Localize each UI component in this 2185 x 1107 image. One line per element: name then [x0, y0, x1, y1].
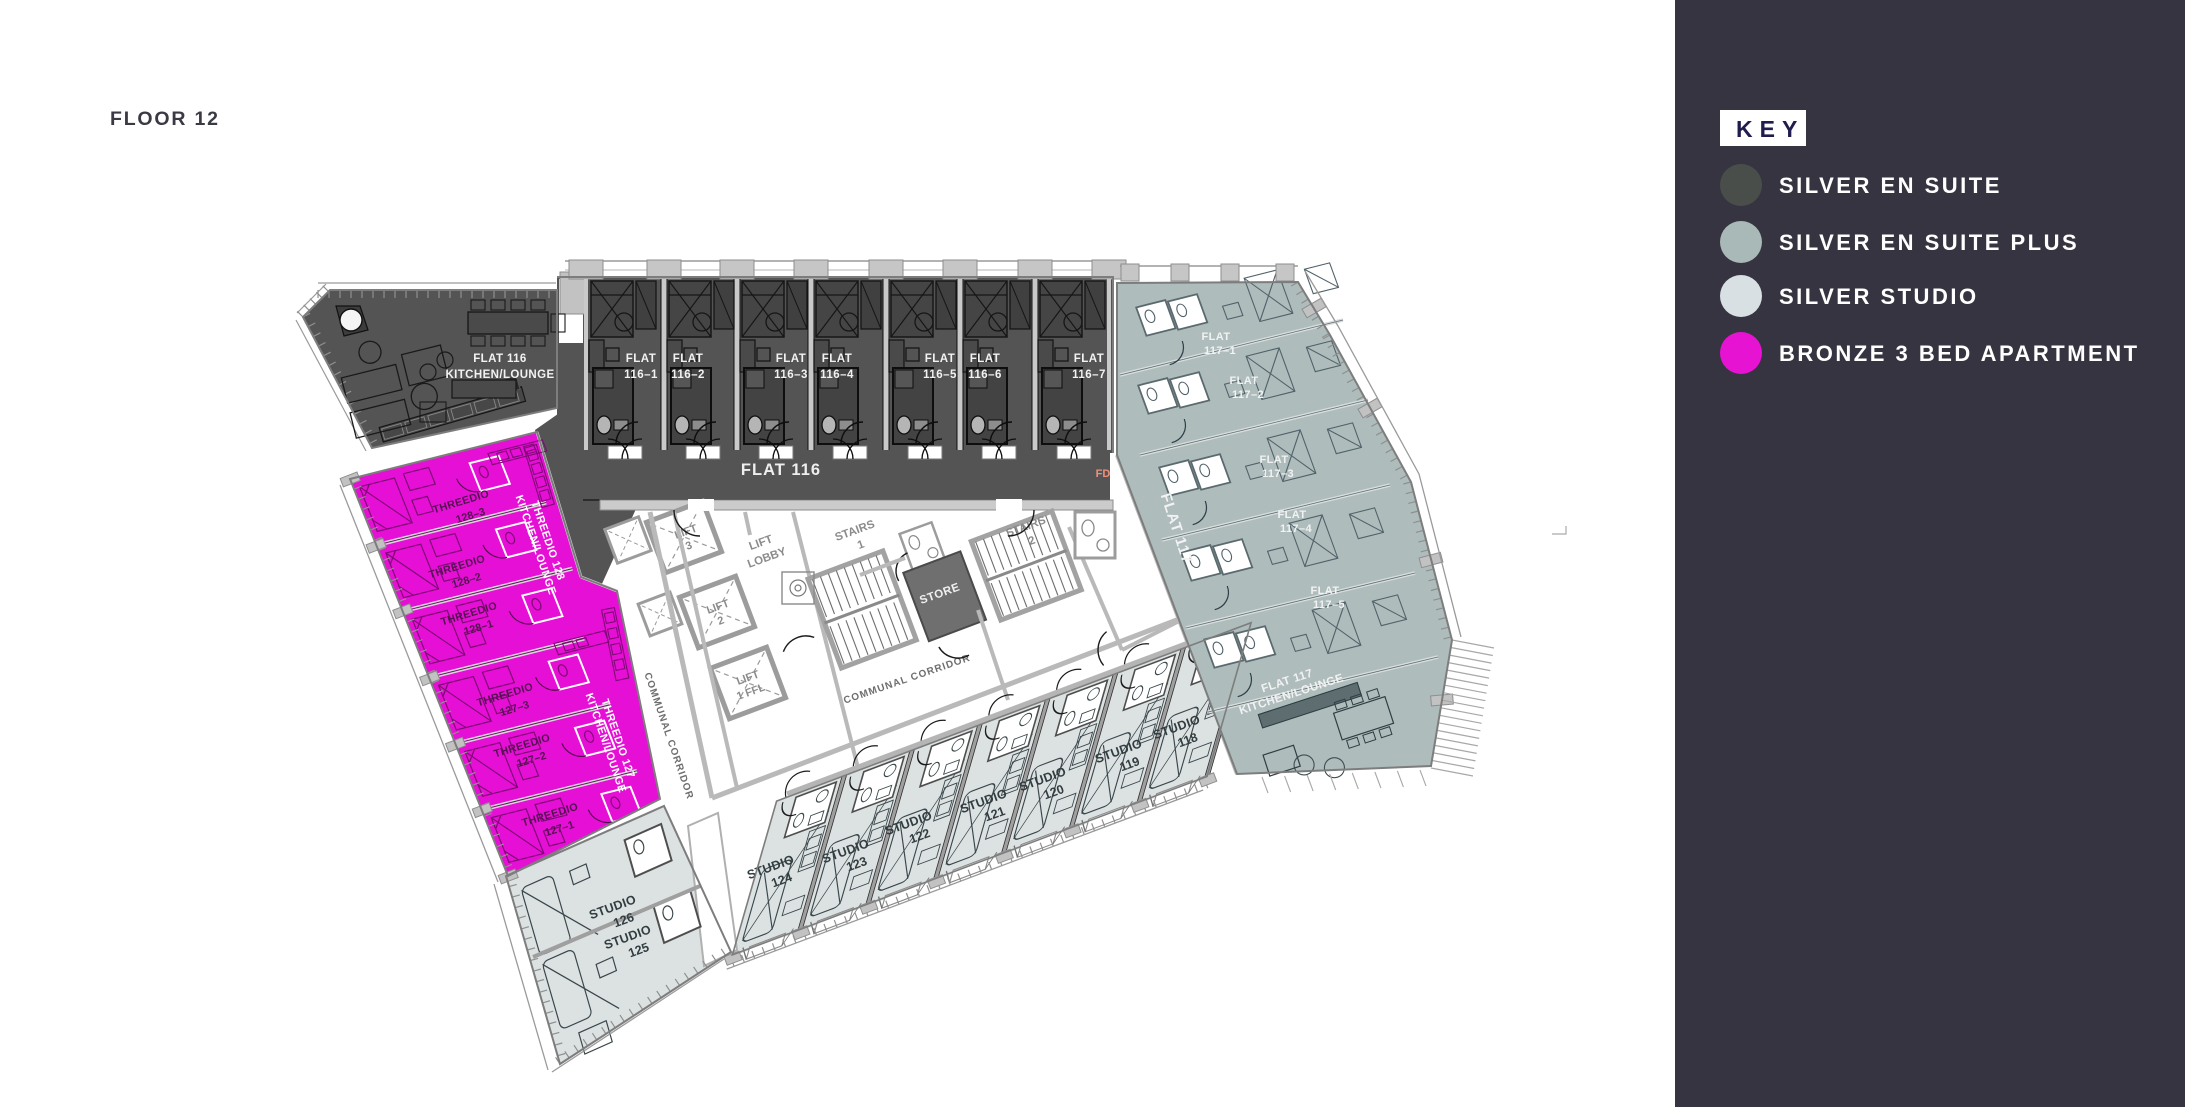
svg-text:FLAT: FLAT: [1202, 331, 1231, 343]
svg-text:116–7: 116–7: [1072, 369, 1106, 381]
svg-text:FLAT: FLAT: [1230, 375, 1259, 387]
svg-text:SILVER STUDIO: SILVER STUDIO: [1779, 284, 1979, 309]
svg-text:FLAT 116: FLAT 116: [741, 461, 821, 479]
svg-text:FLAT 116: FLAT 116: [473, 353, 526, 365]
svg-text:117–4: 117–4: [1280, 523, 1312, 535]
svg-text:KEY: KEY: [1736, 116, 1804, 142]
svg-text:116–1: 116–1: [624, 369, 658, 381]
svg-text:FLAT: FLAT: [673, 353, 704, 365]
svg-text:117–3: 117–3: [1262, 468, 1294, 480]
svg-text:FLAT: FLAT: [1278, 509, 1307, 521]
svg-text:117–5: 117–5: [1313, 599, 1345, 611]
svg-text:SILVER EN SUITE: SILVER EN SUITE: [1779, 173, 2002, 198]
svg-text:117–1: 117–1: [1204, 345, 1236, 357]
svg-text:116–6: 116–6: [968, 369, 1002, 381]
svg-text:116–4: 116–4: [820, 369, 854, 381]
svg-text:FLAT: FLAT: [925, 353, 956, 365]
svg-text:116–3: 116–3: [774, 369, 808, 381]
svg-text:BRONZE 3 BED APARTMENT: BRONZE 3 BED APARTMENT: [1779, 341, 2140, 366]
svg-text:FD: FD: [1096, 468, 1111, 480]
svg-text:FLAT: FLAT: [776, 353, 807, 365]
svg-text:KITCHEN/LOUNGE: KITCHEN/LOUNGE: [445, 369, 554, 381]
svg-text:FLAT: FLAT: [1074, 353, 1105, 365]
svg-text:117–2: 117–2: [1232, 389, 1264, 401]
svg-text:FLAT: FLAT: [970, 353, 1001, 365]
svg-text:FLOOR 12: FLOOR 12: [110, 108, 220, 130]
svg-text:116–5: 116–5: [923, 369, 957, 381]
svg-text:116–2: 116–2: [671, 369, 705, 381]
svg-text:FLAT: FLAT: [626, 353, 657, 365]
svg-text:FLAT: FLAT: [1260, 454, 1289, 466]
svg-text:SILVER EN SUITE PLUS: SILVER EN SUITE PLUS: [1779, 230, 2079, 255]
svg-text:FLAT: FLAT: [1311, 585, 1340, 597]
svg-text:FLAT: FLAT: [822, 353, 853, 365]
